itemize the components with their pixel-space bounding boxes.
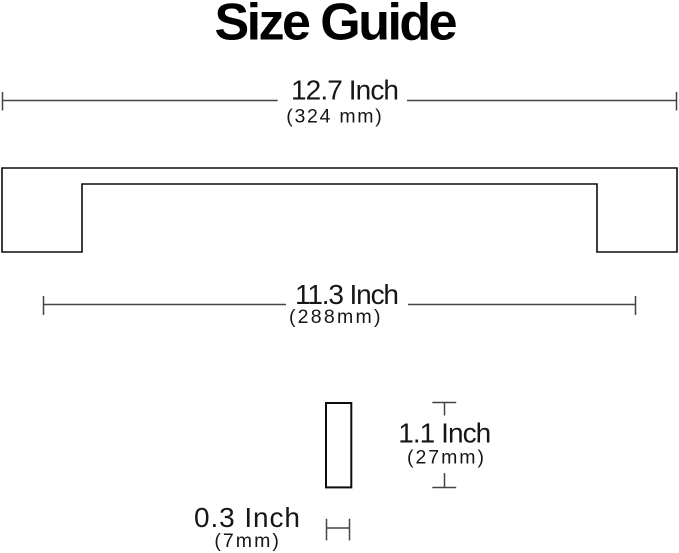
svg-text:(27mm): (27mm) xyxy=(407,447,484,469)
svg-text:12.7 Inch: 12.7 Inch xyxy=(291,75,399,106)
svg-text:(288mm): (288mm) xyxy=(289,306,381,328)
svg-text:(7mm): (7mm) xyxy=(214,530,279,552)
svg-text:(324 mm): (324 mm) xyxy=(286,106,382,128)
svg-text:1.1 Inch: 1.1 Inch xyxy=(398,418,491,449)
svg-text:Size Guide: Size Guide xyxy=(215,0,458,52)
svg-text:0.3 Inch: 0.3 Inch xyxy=(194,502,300,533)
